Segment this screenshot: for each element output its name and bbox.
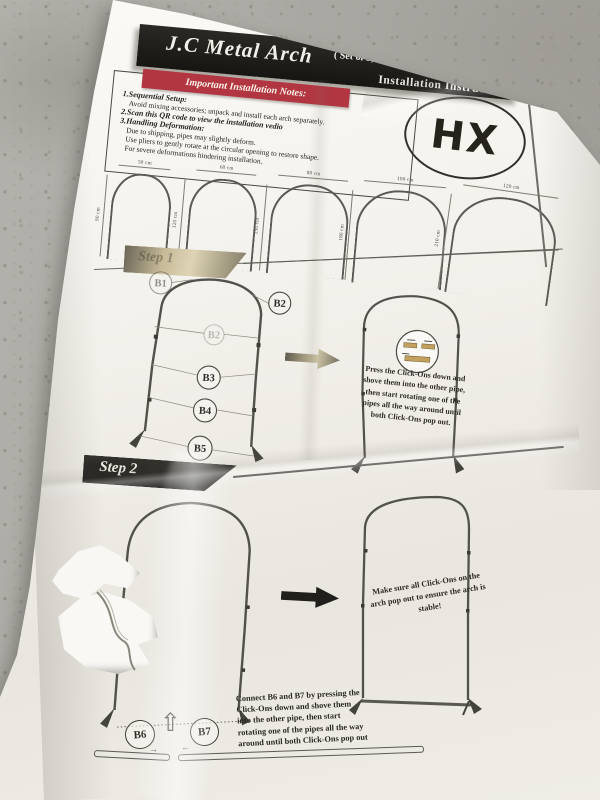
svg-text:B2: B2 bbox=[208, 330, 221, 342]
svg-text:B2: B2 bbox=[273, 298, 286, 310]
arch-height-label: 120 cm bbox=[172, 211, 179, 228]
svg-text:B1: B1 bbox=[154, 278, 167, 290]
hx-logo: HX bbox=[399, 90, 530, 186]
right-edge-shading bbox=[540, 110, 600, 490]
subtitle: Installation Instructions bbox=[378, 74, 512, 98]
part-label-b3: B3 bbox=[197, 365, 221, 389]
step2-connect-instruction: Connect B6 and B7 by pressing the Click-… bbox=[236, 687, 369, 750]
svg-text:B3: B3 bbox=[202, 373, 215, 385]
step1-parts-diagram: B1 B2 B2 B3 B4 B5 bbox=[125, 264, 311, 483]
set-info: ( Set of 5, 3FT/4FT/5FT/6FT/7FT ) bbox=[333, 50, 482, 74]
tear-crack bbox=[85, 588, 145, 678]
svg-text:B4: B4 bbox=[199, 406, 213, 418]
hx-logo-text: HX bbox=[428, 111, 501, 165]
base-crossbar bbox=[361, 701, 471, 705]
part-label-b2: B2 bbox=[268, 292, 291, 315]
arch-width-label: 60 cm bbox=[220, 165, 234, 172]
step2-label: Step 2 bbox=[99, 459, 138, 479]
arrow-left-icon: ← bbox=[181, 742, 190, 752]
instruction-sheet: J.C Metal Arch ( Set of 5, 3FT/4FT/5FT/6… bbox=[0, 0, 600, 800]
floor-pipe-b6 bbox=[94, 750, 170, 760]
part-label-faint: B2 bbox=[203, 324, 224, 345]
arch-width-label: 80 cm bbox=[306, 170, 320, 177]
photo-of-instruction-sheet: J.C Metal Arch ( Set of 5, 3FT/4FT/5FT/6… bbox=[0, 0, 600, 800]
up-arrow-icon: ⇧ bbox=[160, 708, 181, 737]
step1-instruction: Press the Click-Ons down and shove them … bbox=[353, 362, 472, 430]
right-arrow-icon bbox=[280, 583, 339, 610]
page-title: J.C Metal Arch bbox=[165, 31, 313, 69]
part-label-b5: B5 bbox=[187, 436, 212, 461]
part-label-b1: B1 bbox=[149, 271, 172, 294]
arch-width-label: 50 cm bbox=[138, 159, 152, 166]
arch-height-label: 150 cm bbox=[253, 217, 260, 234]
arch-height-label: 90 cm bbox=[95, 207, 102, 221]
part-label-b4: B4 bbox=[193, 398, 217, 422]
paper-wrap: J.C Metal Arch ( Set of 5, 3FT/4FT/5FT/6… bbox=[0, 0, 600, 800]
svg-text:B5: B5 bbox=[194, 443, 207, 455]
floor-pipe-b7 bbox=[178, 746, 424, 761]
